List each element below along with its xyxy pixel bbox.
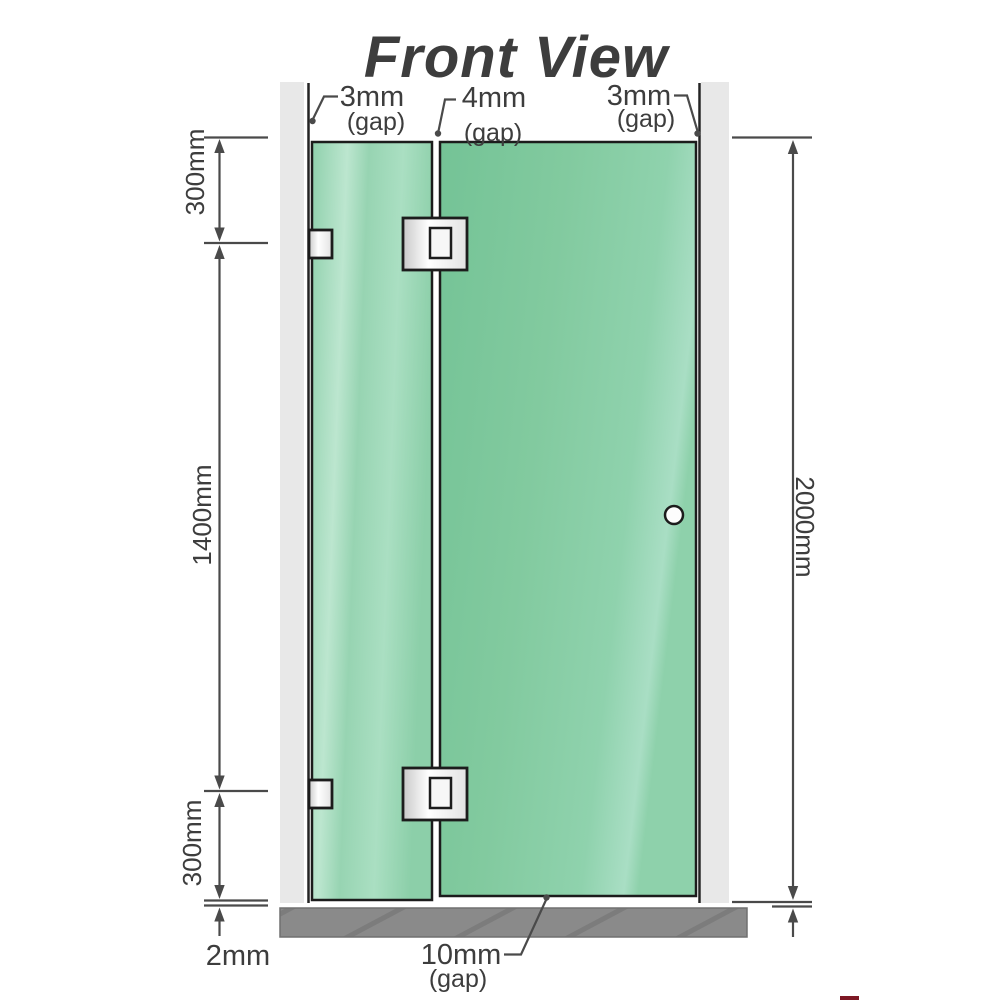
arrowhead-up-gap (788, 909, 798, 923)
page-title: Front View (364, 25, 671, 90)
floor-base (280, 908, 747, 937)
hinge-bottom-knuckle (430, 778, 451, 808)
leader-dot (309, 118, 315, 124)
front-view-diagram: 300mm 1400mm 300mm 2mm 2000mm 3mm (gap) … (0, 0, 1000, 1000)
door-knob (665, 506, 683, 524)
gap-bottom-suffix: (gap) (429, 965, 487, 993)
dim-label-2000: 2000mm (790, 476, 820, 577)
hinge-bottom (403, 768, 467, 820)
arrowhead-up-2mm (214, 908, 224, 922)
hinge-top-knuckle (430, 228, 451, 258)
dim-label-2mm: 2mm (206, 940, 270, 972)
arrowhead-down (788, 886, 798, 900)
diagram-canvas: 300mm 1400mm 300mm 2mm 2000mm 3mm (gap) … (0, 0, 1000, 1000)
gap-callout-middle: 4mm (gap) (435, 82, 526, 147)
arrowhead-up (214, 245, 224, 259)
wall-bracket-top (309, 230, 332, 258)
arrowhead-down (214, 885, 224, 899)
glass-door-panel (440, 142, 696, 896)
left-wall (280, 82, 304, 903)
arrowhead-up (214, 139, 224, 153)
gap-middle-suffix: (gap) (464, 119, 522, 147)
leader-dot (435, 130, 441, 136)
arrowhead-up (788, 140, 798, 154)
hinge-top (403, 218, 467, 270)
left-dimension-group: 300mm 1400mm 300mm 2mm (177, 129, 270, 972)
wall-bracket-bottom (309, 780, 332, 808)
leader-line (674, 96, 698, 132)
dim-label-300-top: 300mm (180, 129, 210, 216)
logo-sliver (840, 996, 859, 1000)
dim-label-1400: 1400mm (187, 464, 217, 565)
gap-left-suffix: (gap) (347, 108, 405, 136)
arrowhead-down (214, 776, 224, 790)
right-dimension-group: 2000mm (732, 138, 820, 938)
leader-dot (694, 130, 700, 136)
leader-line (439, 100, 457, 132)
arrowhead-up (214, 793, 224, 807)
gap-right-suffix: (gap) (617, 105, 675, 133)
dim-label-300-bottom: 300mm (177, 800, 207, 887)
leader-dot (543, 894, 549, 900)
leader-line (313, 97, 338, 120)
arrowhead-down (214, 228, 224, 242)
right-wall (701, 82, 729, 903)
